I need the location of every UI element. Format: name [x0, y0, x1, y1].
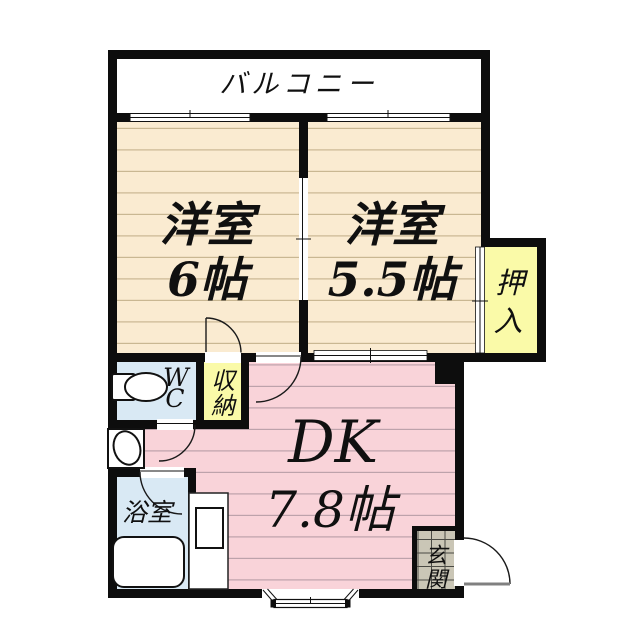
bathroom-label: 浴室 [122, 498, 175, 527]
doorway-room-nw-storage [205, 352, 241, 363]
doorway-wc [157, 419, 193, 430]
wall-entrance-top [412, 526, 455, 531]
storage-label-char1: 収 [211, 367, 238, 395]
wall-top [108, 50, 490, 59]
storage-label-char2: 納 [211, 392, 237, 420]
wall-wc-storage-divider [196, 362, 204, 420]
floor-plan-svg: バルコニー 洋室 6帖 洋室 5.5帖 押 入 W C 収 納 DK 7.8帖 … [0, 0, 640, 640]
bathtub-icon [113, 537, 184, 587]
kitchen-counter [189, 493, 228, 589]
wall-storage-right [241, 353, 249, 429]
room-nw-size-label: 6帖 [167, 253, 254, 308]
entrance-label-char1: 玄 [425, 544, 450, 569]
wall-right-upper [481, 50, 490, 247]
room-ne-name-label: 洋室 [345, 198, 446, 253]
wall-entrance-left [412, 526, 417, 589]
wall-dk-corner-step [435, 362, 464, 384]
room-nw-name-label: 洋室 [160, 198, 261, 253]
closet-label-char2: 入 [493, 304, 522, 338]
floor-plan-page: バルコニー 洋室 6帖 洋室 5.5帖 押 入 W C 収 納 DK 7.8帖 … [0, 0, 640, 640]
closet-label-char1: 押 [495, 266, 528, 300]
toilet-icon [112, 373, 167, 401]
entrance-label-char2: 関 [425, 568, 450, 593]
doorway-bathroom [140, 467, 184, 478]
kitchen-sink [196, 508, 223, 548]
balcony-label: バルコニー [219, 69, 378, 100]
door-entry [464, 538, 510, 584]
wall-closet-right [537, 238, 546, 362]
wall-closet-top [481, 238, 546, 247]
dk-name-label: DK [287, 408, 382, 476]
room-ne-size-label: 5.5帖 [328, 253, 464, 308]
slider-dk [314, 348, 427, 363]
washbasin-icon [108, 428, 145, 468]
wall-left [108, 50, 117, 598]
bay-window [262, 589, 359, 610]
doorway-entry [454, 540, 465, 586]
doorway-dk [256, 352, 301, 363]
wc-label-char2: C [165, 384, 184, 413]
dk-size-label: 7.8帖 [265, 481, 401, 539]
